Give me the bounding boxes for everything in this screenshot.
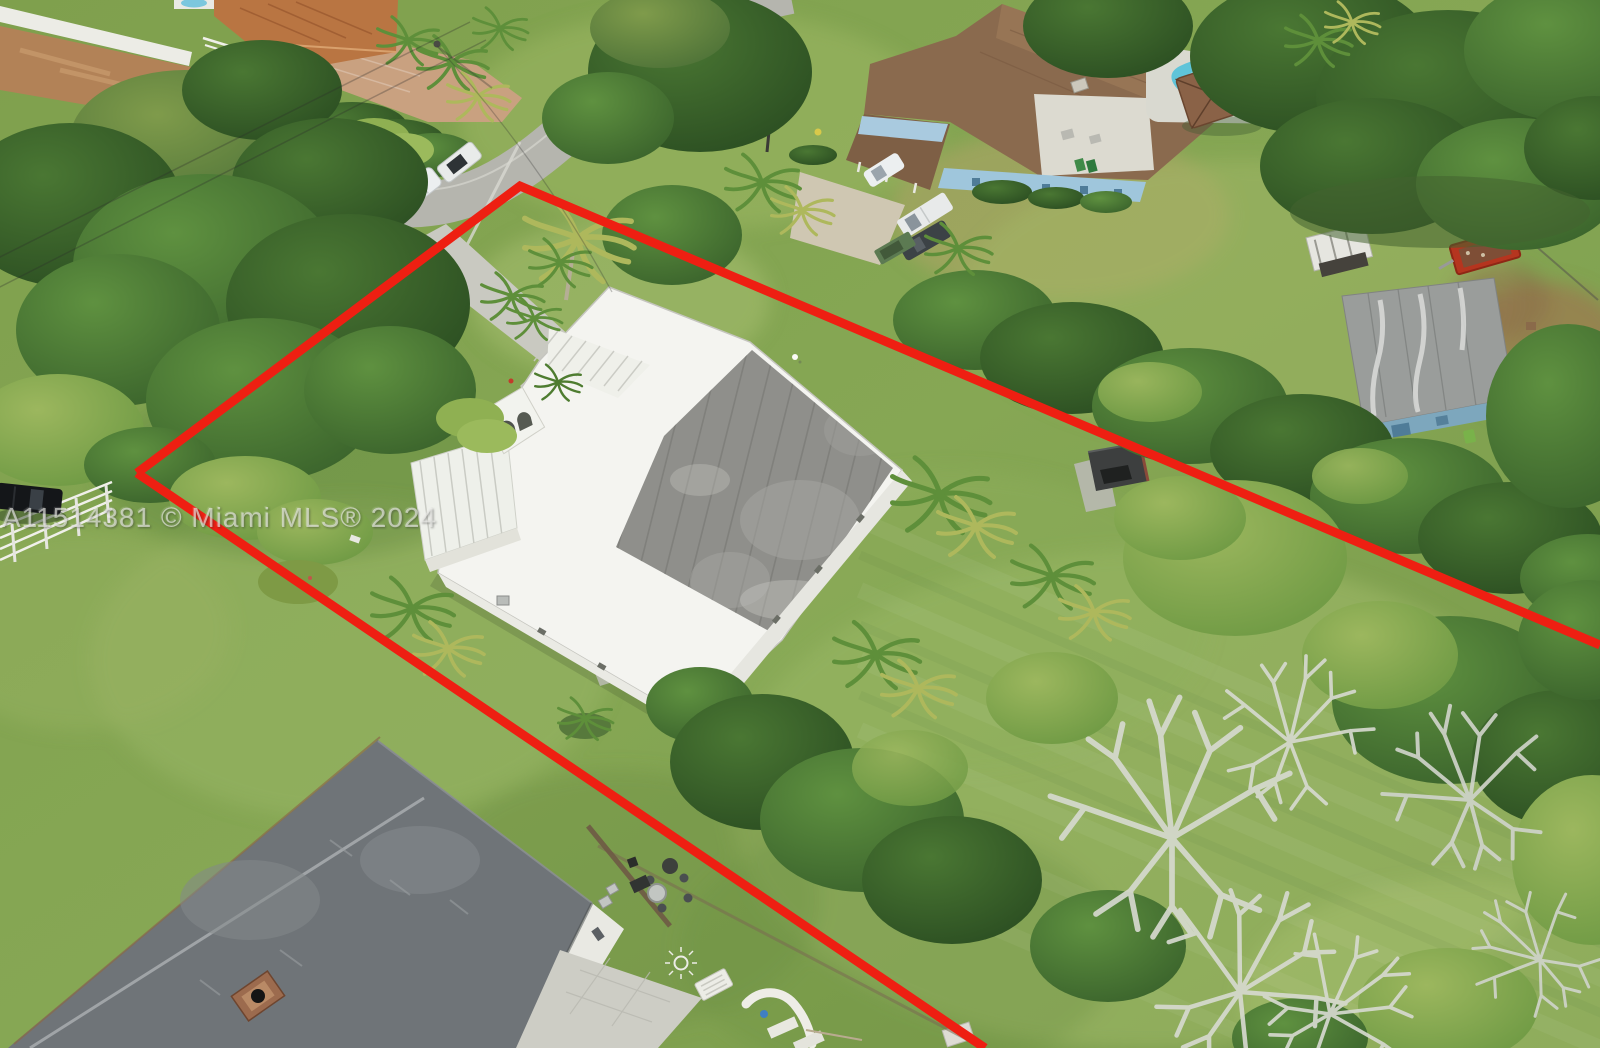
aerial-photo-canvas [0,0,1600,1048]
parked-black-truck [0,483,66,524]
aerial-photo: A11514381 © Miami MLS® 2024 [0,0,1600,1048]
white-bird [792,354,798,360]
ac-unit [497,596,509,605]
yard-ball [815,129,822,136]
red-flower-pot [509,379,514,384]
